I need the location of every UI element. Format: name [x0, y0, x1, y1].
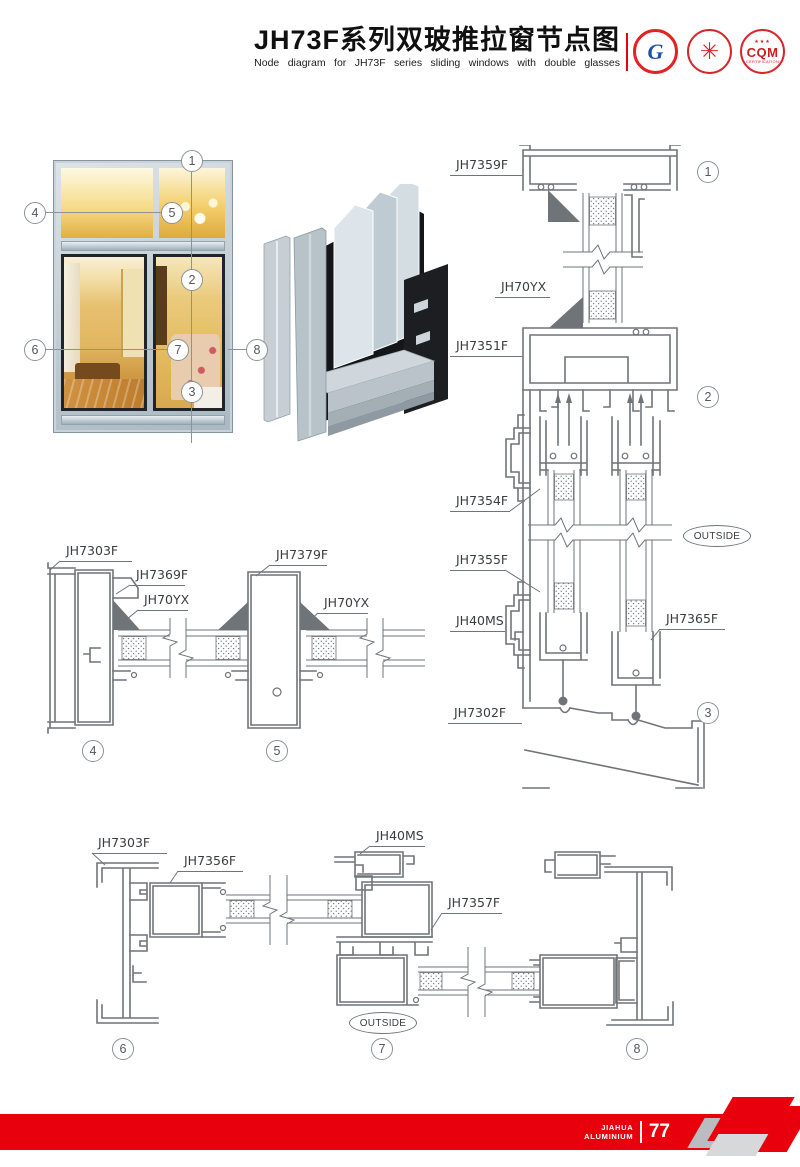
brand-name: JIAHUA ALUMINIUM	[584, 1123, 633, 1141]
star-seal-logo: ✳	[687, 29, 732, 74]
section-marker-6: 6	[112, 1038, 134, 1060]
section-marker-1: 1	[697, 161, 719, 183]
callout-1: 1	[181, 150, 203, 172]
part-label-jh7356f: JH7356F	[178, 853, 243, 872]
diagram-horizontal-section: JH7303F JH7356F JH40MS JH7357F OUTSIDE 6…	[60, 820, 800, 1065]
callout-line-mid-right	[228, 349, 246, 350]
part-label-jh7355f: JH7355F	[450, 552, 505, 571]
part-label-jh40ms: JH40MS	[370, 828, 425, 847]
brand-divider	[640, 1121, 642, 1143]
sash-left	[61, 254, 147, 411]
section-marker-2: 2	[697, 386, 719, 408]
curtain	[64, 263, 80, 372]
transom-bar	[61, 241, 225, 251]
part-label-jh7379f: JH7379F	[270, 547, 327, 566]
callout-2: 2	[181, 269, 203, 291]
callout-6: 6	[24, 339, 46, 361]
cqm-logo: ★★★ CQM CERTIFICATION	[740, 29, 785, 74]
transom-pane-left	[61, 168, 153, 238]
header-titles: JH73F系列双玻推拉窗节点图 Node diagram for JH73F s…	[120, 25, 620, 69]
outside-badge: OUTSIDE	[683, 525, 751, 547]
cabinet	[156, 266, 167, 345]
header-divider	[626, 33, 628, 71]
callout-4: 4	[24, 202, 46, 224]
section-marker-7: 7	[371, 1038, 393, 1060]
gb-certification-logo: G	[633, 29, 678, 74]
part-label-jh7351f: JH7351F	[450, 338, 523, 357]
brand-line-2: ALUMINIUM	[584, 1132, 633, 1141]
page-subtitle: Node diagram for JH73F series sliding wi…	[120, 57, 620, 69]
callout-line-top	[46, 212, 161, 213]
part-label-jh70yx: JH70YX	[138, 592, 188, 611]
section-marker-5: 5	[266, 740, 288, 762]
window-photo	[53, 160, 233, 433]
part-label-jh7354f: JH7354F	[450, 493, 510, 512]
diagram-jamb-mullion: JH7303F JH7369F JH70YX JH7379F JH70YX 4 …	[30, 530, 440, 775]
brand-line-1: JIAHUA	[584, 1123, 633, 1132]
diagram-vertical-section: JH7359F 1 JH70YX JH7351F 2 JH7354F OUTSI…	[440, 145, 800, 805]
page-number: 77	[649, 1121, 670, 1143]
part-label-jh70yx: JH70YX	[495, 279, 550, 298]
part-label-jh7365f: JH7365F	[660, 611, 725, 630]
part-label-jh7303f: JH7303F	[92, 835, 167, 854]
profile-render-3d	[256, 184, 456, 446]
part-label-jh7303f: JH7303F	[60, 543, 132, 562]
footer-brand: JIAHUA ALUMINIUM 77	[0, 1114, 728, 1150]
part-label-jh7359f: JH7359F	[450, 157, 523, 176]
part-label-jh7357f: JH7357F	[442, 895, 502, 914]
part-label-jh7369f: JH7369F	[130, 567, 185, 586]
section-marker-8: 8	[626, 1038, 648, 1060]
part-label-jh7302f: JH7302F	[448, 705, 522, 724]
gb-logo-letter: G	[648, 39, 664, 65]
part-label-jh40ms: JH40MS	[450, 613, 505, 632]
section-marker-3: 3	[697, 702, 719, 724]
callout-3: 3	[181, 381, 203, 403]
callout-5: 5	[161, 202, 183, 224]
cqm-stars-icon: ★★★	[754, 40, 770, 45]
cqm-logo-text: CQM	[747, 46, 779, 59]
seal-star-icon: ✳	[700, 38, 719, 65]
transom-row	[61, 168, 225, 238]
doorway	[121, 269, 144, 357]
section-marker-4: 4	[82, 740, 104, 762]
page-title: JH73F系列双玻推拉窗节点图	[120, 25, 620, 55]
part-label-jh70yx-2: JH70YX	[318, 595, 368, 614]
bottom-rail	[61, 415, 225, 425]
callout-8: 8	[246, 339, 268, 361]
cqm-cert-text: CERTIFICATION	[746, 60, 779, 64]
outside-badge: OUTSIDE	[349, 1012, 417, 1034]
callout-line-mid-left	[46, 349, 168, 350]
callout-7: 7	[167, 339, 189, 361]
catalog-page: JH73F系列双玻推拉窗节点图 Node diagram for JH73F s…	[0, 0, 800, 1167]
wood-floor	[64, 379, 144, 408]
